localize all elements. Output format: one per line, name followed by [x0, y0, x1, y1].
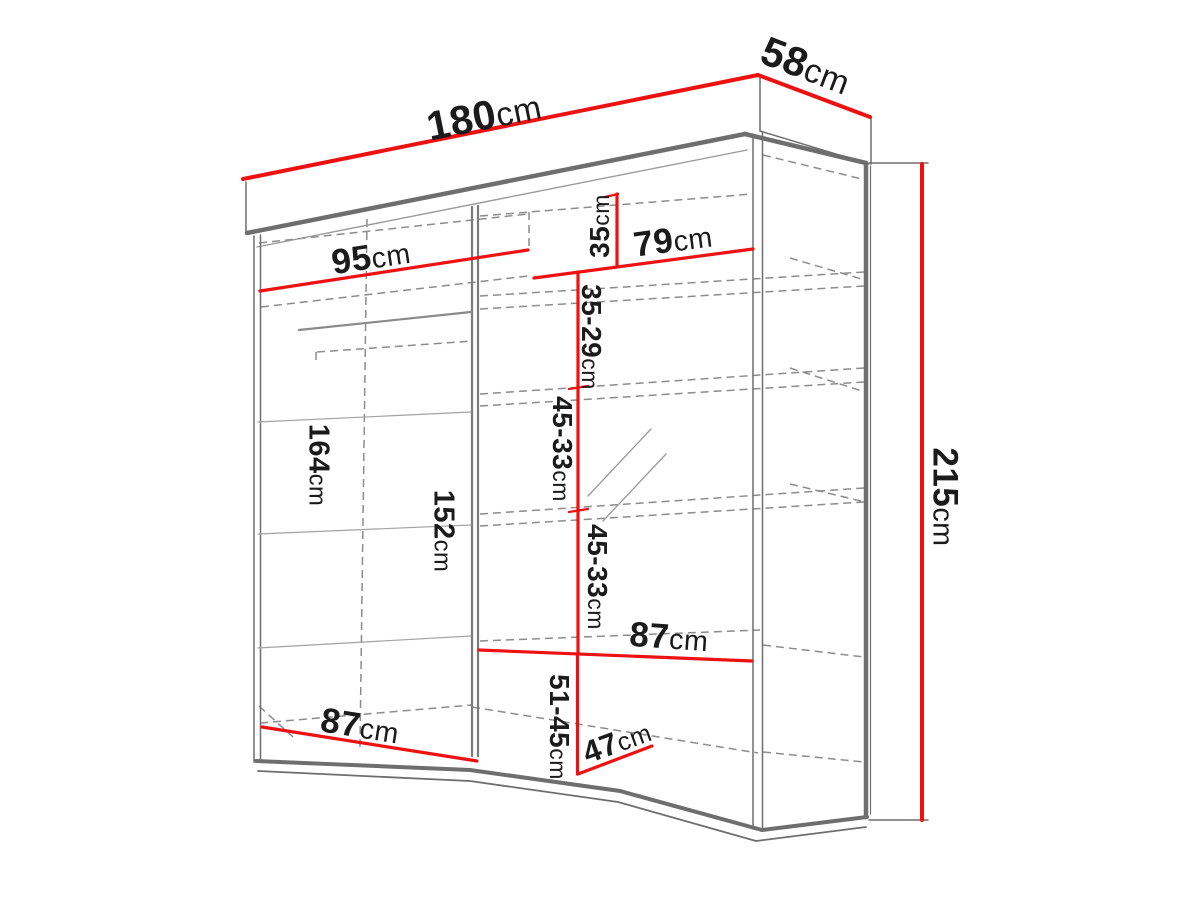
- dim-value: 35: [584, 226, 615, 258]
- dim-unit: cm: [927, 507, 959, 546]
- dim-unit: cm: [304, 474, 331, 507]
- dim-value: 45-33: [547, 396, 578, 470]
- dim-label-width-87-right: 87cm: [628, 617, 709, 657]
- dim-unit: cm: [369, 238, 413, 275]
- dim-value: 152: [428, 490, 460, 540]
- dim-unit: cm: [548, 470, 574, 502]
- dim-unit: cm: [545, 748, 571, 780]
- dim-label-shelf-45-33-lower: 45-33cm: [583, 524, 611, 630]
- dim-value: 87: [628, 615, 671, 657]
- dim-value: 35-29: [576, 284, 607, 358]
- dim-unit: cm: [577, 358, 603, 390]
- dim-label-shelf-45-33-upper: 45-33cm: [548, 396, 576, 502]
- dim-unit: cm: [672, 221, 715, 258]
- dim-unit: cm: [583, 598, 609, 630]
- dim-unit: cm: [357, 713, 401, 751]
- dim-value: 45-33: [582, 524, 613, 598]
- dim-value: 51-45: [544, 674, 575, 748]
- dim-value: 215: [926, 447, 965, 507]
- dim-value: 164: [303, 424, 335, 474]
- dim-value: 79: [631, 221, 676, 265]
- dim-value: 87: [318, 701, 364, 746]
- dim-unit: cm: [588, 194, 614, 226]
- dim-label-shelf-51-45: 51-45cm: [545, 674, 573, 780]
- dim-label-shelf-35-29: 35-29cm: [577, 284, 605, 390]
- dim-label-height-152: 152cm: [429, 490, 458, 573]
- dim-label-total-height: 215cm: [928, 447, 963, 546]
- dim-label-top-shelf: 35cm: [586, 194, 614, 258]
- dim-label-height-164: 164cm: [304, 424, 333, 507]
- dim-value: 95: [329, 238, 374, 282]
- wardrobe-dimension-diagram: 180cm 58cm 215cm 95cm 79cm 35cm 35-29cm …: [0, 0, 1200, 899]
- dim-unit: cm: [429, 540, 456, 573]
- dim-unit: cm: [668, 624, 709, 659]
